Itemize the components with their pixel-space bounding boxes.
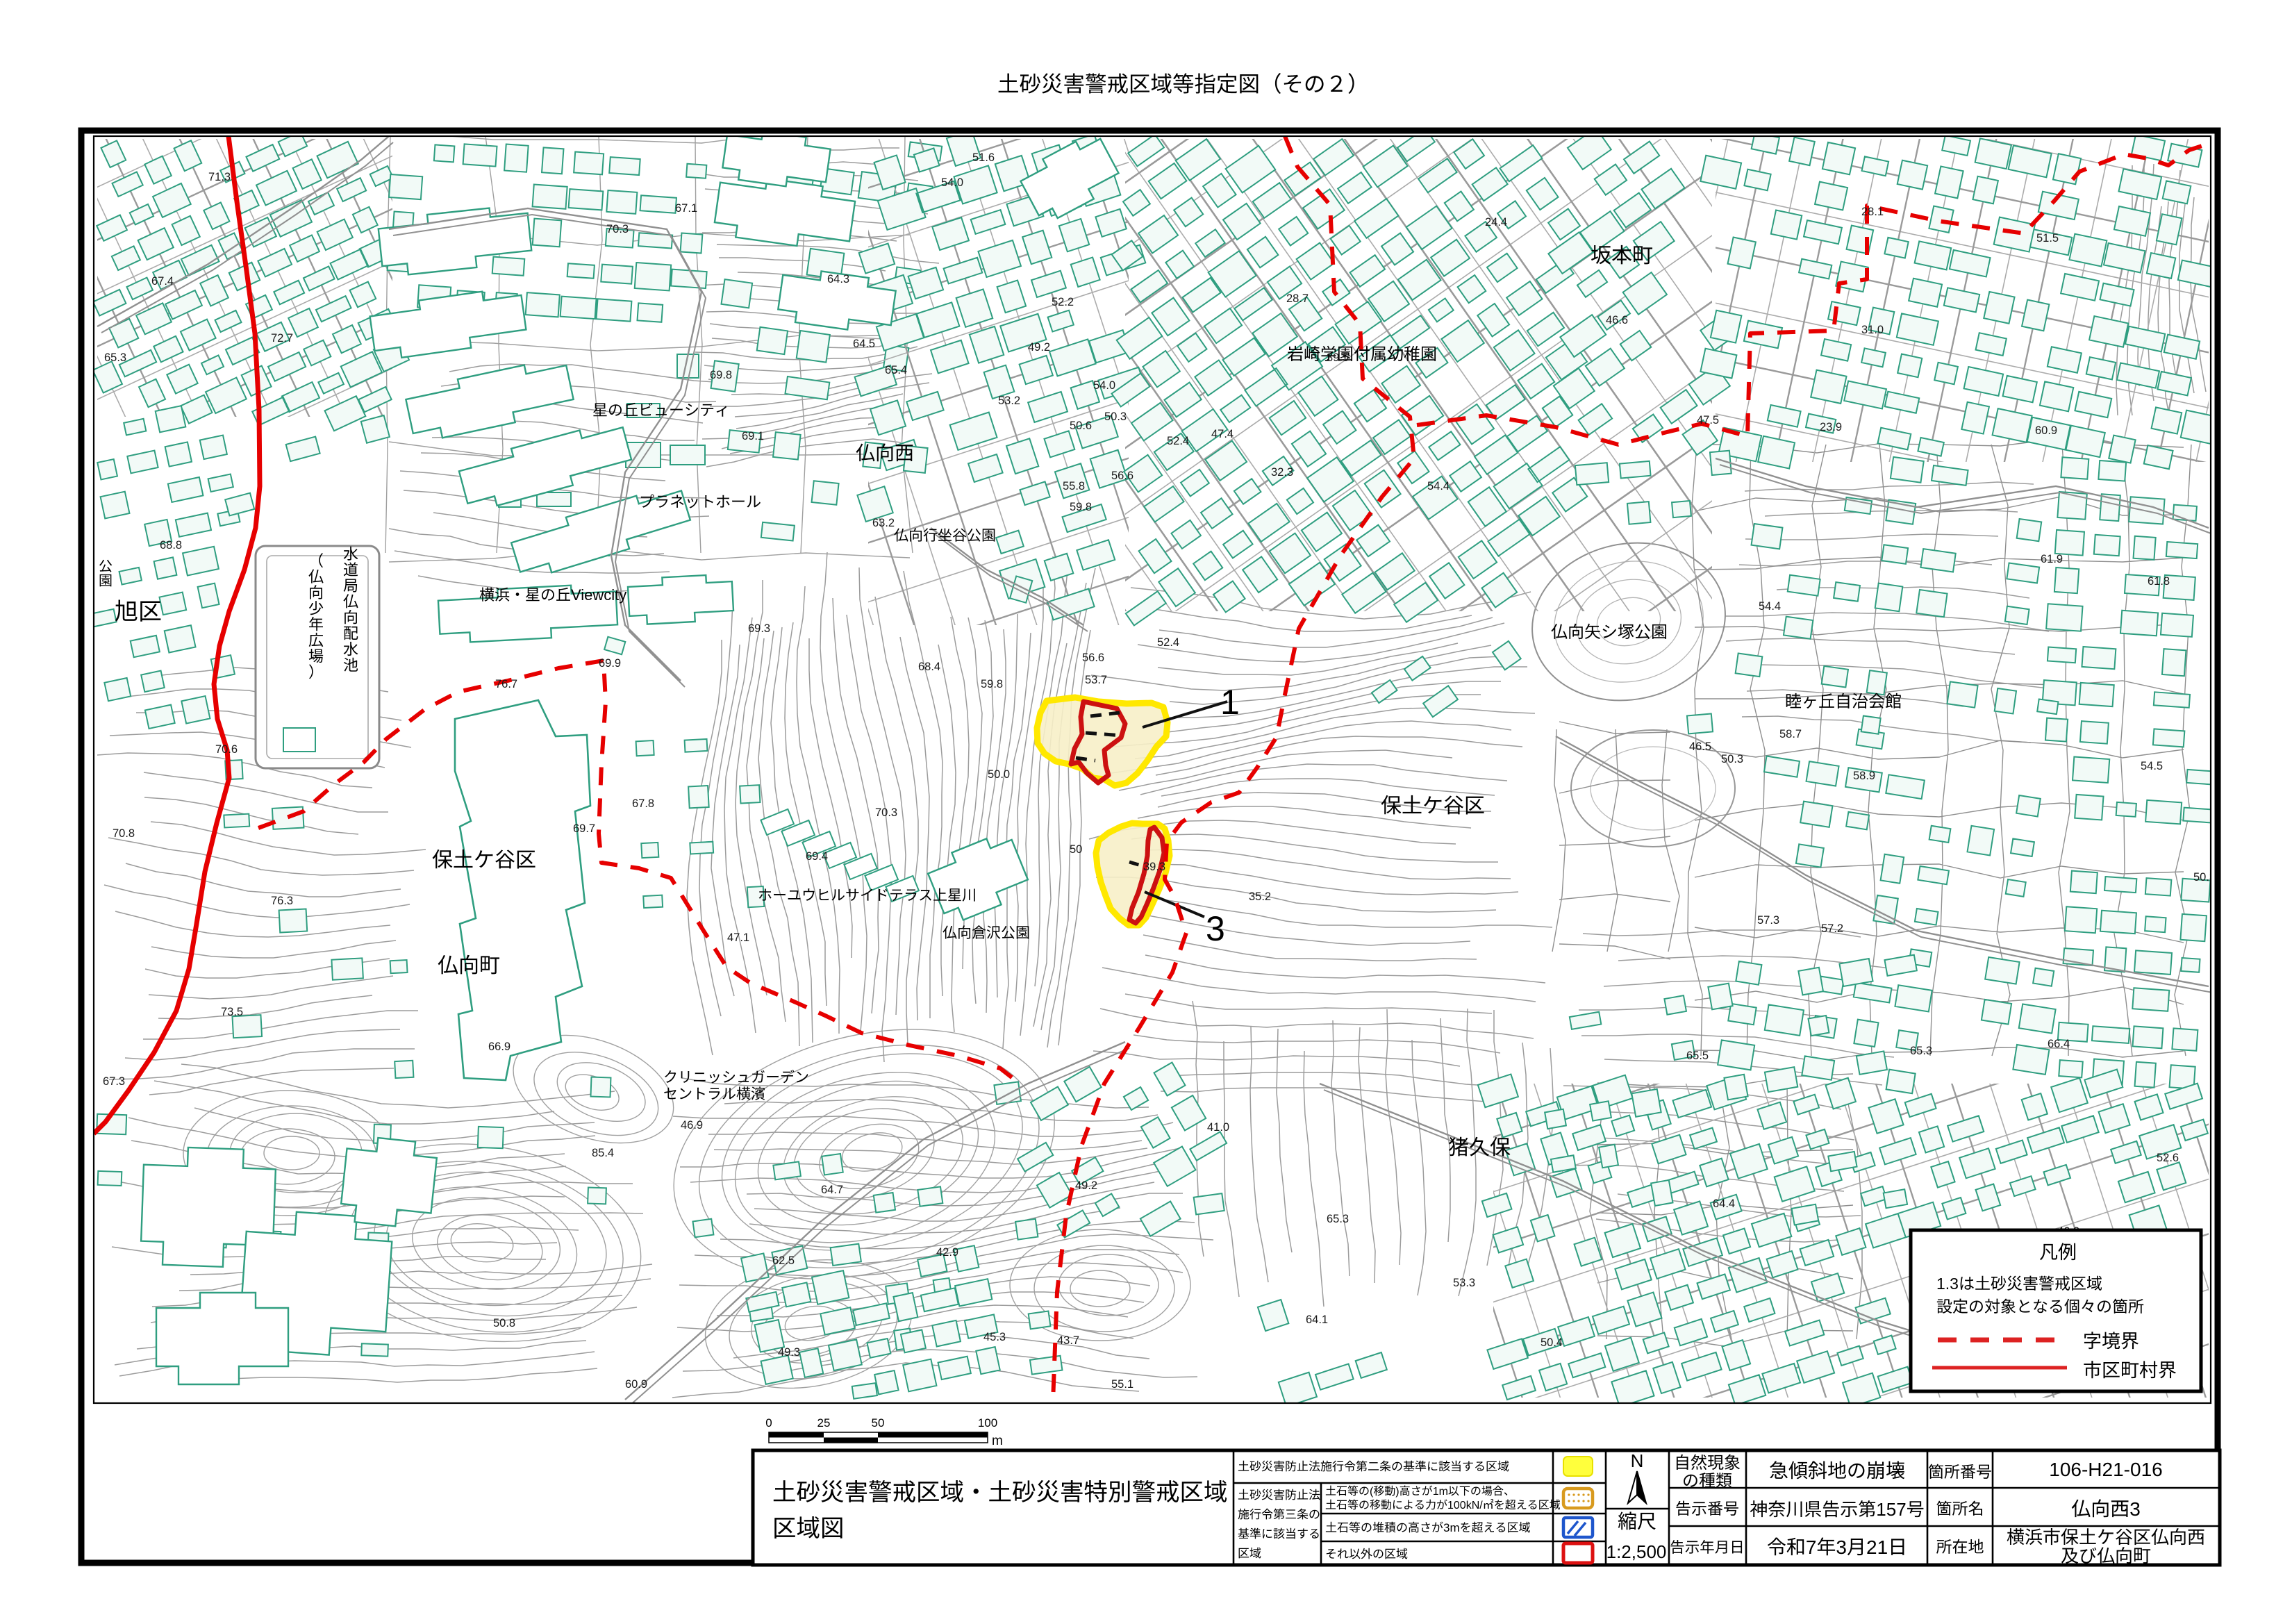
svg-text:61.8: 61.8 bbox=[2148, 575, 2170, 588]
svg-text:50.4: 50.4 bbox=[1541, 1336, 1563, 1349]
svg-text:70.8: 70.8 bbox=[113, 827, 135, 840]
svg-text:46.9: 46.9 bbox=[681, 1119, 703, 1132]
svg-text:45.3: 45.3 bbox=[983, 1331, 1006, 1343]
svg-text:66.9: 66.9 bbox=[488, 1041, 510, 1053]
svg-text:42.9: 42.9 bbox=[936, 1246, 958, 1259]
svg-text:0: 0 bbox=[765, 1416, 772, 1430]
svg-text:76.3: 76.3 bbox=[271, 895, 293, 907]
svg-text:69.4: 69.4 bbox=[806, 850, 828, 863]
svg-text:64.4: 64.4 bbox=[1713, 1198, 1735, 1210]
svg-text:49.2: 49.2 bbox=[1028, 341, 1050, 354]
svg-text:67.3: 67.3 bbox=[103, 1075, 125, 1088]
svg-text:46.6: 46.6 bbox=[1606, 314, 1628, 326]
svg-text:54.0: 54.0 bbox=[941, 176, 963, 189]
svg-text:60.9: 60.9 bbox=[2035, 424, 2057, 437]
svg-text:1.3: 1.3 bbox=[1936, 1275, 1959, 1293]
svg-text:64.7: 64.7 bbox=[821, 1184, 843, 1196]
svg-text:23.9: 23.9 bbox=[1820, 421, 1842, 433]
svg-text:39.5: 39.5 bbox=[1327, 351, 1349, 364]
svg-text:85.4: 85.4 bbox=[592, 1147, 614, 1159]
svg-text:53.7: 53.7 bbox=[1085, 674, 1107, 686]
svg-text:61.9: 61.9 bbox=[2041, 553, 2063, 565]
svg-text:59.8: 59.8 bbox=[981, 678, 1003, 690]
svg-text:52.2: 52.2 bbox=[1052, 296, 1074, 308]
svg-text:51.6: 51.6 bbox=[972, 151, 995, 164]
svg-text:58.9: 58.9 bbox=[1853, 770, 1875, 782]
svg-text:64.3: 64.3 bbox=[827, 273, 849, 285]
svg-text:53.2: 53.2 bbox=[998, 395, 1020, 407]
svg-text:3: 3 bbox=[2129, 1498, 2141, 1520]
svg-text:1m: 1m bbox=[1433, 1486, 1448, 1498]
svg-text:100kN/: 100kN/ bbox=[1447, 1500, 1483, 1511]
svg-text:52.4: 52.4 bbox=[1167, 435, 1189, 447]
svg-text:50: 50 bbox=[1070, 843, 1082, 856]
svg-text:41.0: 41.0 bbox=[1207, 1121, 1229, 1134]
svg-text:54.4: 54.4 bbox=[1427, 480, 1450, 492]
svg-text:68.8: 68.8 bbox=[160, 539, 182, 552]
svg-text:58.7: 58.7 bbox=[1779, 728, 1802, 740]
svg-text:66.4: 66.4 bbox=[2048, 1038, 2070, 1050]
svg-text:70.6: 70.6 bbox=[215, 743, 238, 756]
svg-text:64.5: 64.5 bbox=[853, 338, 875, 350]
svg-text:31.0: 31.0 bbox=[1861, 324, 1884, 336]
svg-text:56.6: 56.6 bbox=[1111, 470, 1133, 482]
svg-text:157: 157 bbox=[1876, 1499, 1906, 1520]
svg-text:24.4: 24.4 bbox=[1485, 216, 1507, 229]
svg-text:3: 3 bbox=[1836, 1536, 1847, 1558]
svg-text:47.1: 47.1 bbox=[727, 931, 749, 944]
svg-text:39.3: 39.3 bbox=[1143, 861, 1165, 873]
svg-text:54.0: 54.0 bbox=[1093, 379, 1115, 392]
svg-text:28.7: 28.7 bbox=[1286, 292, 1309, 305]
svg-text:51.5: 51.5 bbox=[2036, 232, 2059, 245]
svg-text:52.4: 52.4 bbox=[1157, 636, 1179, 649]
svg-text:49.3: 49.3 bbox=[778, 1346, 800, 1359]
svg-text:62.5: 62.5 bbox=[772, 1254, 795, 1267]
svg-text:50.6: 50.6 bbox=[1070, 420, 1092, 432]
svg-text:72.7: 72.7 bbox=[271, 332, 293, 345]
svg-text:43.7: 43.7 bbox=[1057, 1334, 1079, 1347]
svg-text:Viewcity: Viewcity bbox=[571, 586, 626, 604]
svg-text:69.3: 69.3 bbox=[748, 622, 770, 635]
svg-text:69.7: 69.7 bbox=[573, 822, 595, 835]
svg-text:71.3: 71.3 bbox=[208, 171, 231, 183]
svg-text:67.4: 67.4 bbox=[151, 275, 174, 288]
svg-text:106-H21-016: 106-H21-016 bbox=[2049, 1459, 2162, 1480]
svg-text:76.7: 76.7 bbox=[495, 678, 517, 690]
svg-text:100: 100 bbox=[978, 1416, 997, 1430]
svg-text:32.3: 32.3 bbox=[1271, 466, 1293, 479]
svg-text:50.8: 50.8 bbox=[493, 1317, 515, 1329]
svg-text:35.2: 35.2 bbox=[1249, 890, 1271, 903]
svg-text:60.9: 60.9 bbox=[625, 1378, 647, 1391]
svg-text:25: 25 bbox=[817, 1416, 831, 1430]
svg-text:(: ( bbox=[1370, 1486, 1374, 1498]
svg-text:50: 50 bbox=[872, 1416, 885, 1430]
svg-text:70.3: 70.3 bbox=[606, 223, 629, 235]
svg-text:69.9: 69.9 bbox=[599, 657, 621, 670]
svg-text:67.1: 67.1 bbox=[675, 202, 697, 215]
svg-text:50.3: 50.3 bbox=[1721, 753, 1743, 765]
svg-text:65.3: 65.3 bbox=[1327, 1213, 1349, 1225]
svg-text:57.2: 57.2 bbox=[1821, 922, 1843, 935]
svg-text:73.5: 73.5 bbox=[221, 1006, 243, 1018]
svg-text:46.5: 46.5 bbox=[1689, 740, 1711, 753]
svg-text:1:2,500: 1:2,500 bbox=[1606, 1541, 1667, 1562]
svg-text:65.3: 65.3 bbox=[104, 351, 126, 364]
svg-text:49.2: 49.2 bbox=[1075, 1179, 1097, 1192]
svg-text:): ) bbox=[1395, 1486, 1399, 1498]
svg-text:64.1: 64.1 bbox=[1306, 1314, 1328, 1326]
svg-text:55.1: 55.1 bbox=[1111, 1378, 1133, 1391]
svg-text:47.5: 47.5 bbox=[1697, 414, 1719, 426]
svg-text:65.3: 65.3 bbox=[1910, 1045, 1932, 1057]
svg-text:m: m bbox=[992, 1434, 1003, 1448]
svg-text:3: 3 bbox=[1206, 909, 1225, 948]
svg-text:56.6: 56.6 bbox=[1082, 652, 1104, 664]
svg-text:69.1: 69.1 bbox=[742, 430, 764, 442]
svg-text:50.3: 50.3 bbox=[1104, 411, 1127, 423]
svg-text:65.4: 65.4 bbox=[885, 364, 907, 376]
svg-text:28.1: 28.1 bbox=[1861, 206, 1884, 218]
svg-text:55.8: 55.8 bbox=[1063, 480, 1085, 492]
svg-text:67.8: 67.8 bbox=[632, 797, 654, 810]
svg-text:7: 7 bbox=[1806, 1536, 1817, 1558]
svg-text:57.3: 57.3 bbox=[1757, 914, 1779, 927]
svg-text:50.0: 50.0 bbox=[988, 768, 1010, 781]
svg-text:3m: 3m bbox=[1443, 1521, 1460, 1534]
svg-text:65.5: 65.5 bbox=[1686, 1050, 1709, 1062]
svg-text:52.6: 52.6 bbox=[2157, 1152, 2179, 1164]
svg-text:63.2: 63.2 bbox=[872, 517, 895, 529]
svg-text:54.4: 54.4 bbox=[1759, 600, 1781, 613]
svg-text:1: 1 bbox=[1220, 683, 1240, 722]
svg-text:47.4: 47.4 bbox=[1211, 428, 1234, 440]
svg-text:69.8: 69.8 bbox=[710, 369, 732, 381]
svg-text:59.8: 59.8 bbox=[1070, 501, 1092, 513]
svg-text:68.4: 68.4 bbox=[918, 661, 940, 673]
svg-text:70.3: 70.3 bbox=[875, 806, 897, 819]
svg-text:21: 21 bbox=[1866, 1536, 1888, 1558]
svg-text:53.3: 53.3 bbox=[1453, 1277, 1475, 1289]
svg-text:54.5: 54.5 bbox=[2141, 760, 2163, 772]
svg-text:N: N bbox=[1631, 1450, 1644, 1471]
